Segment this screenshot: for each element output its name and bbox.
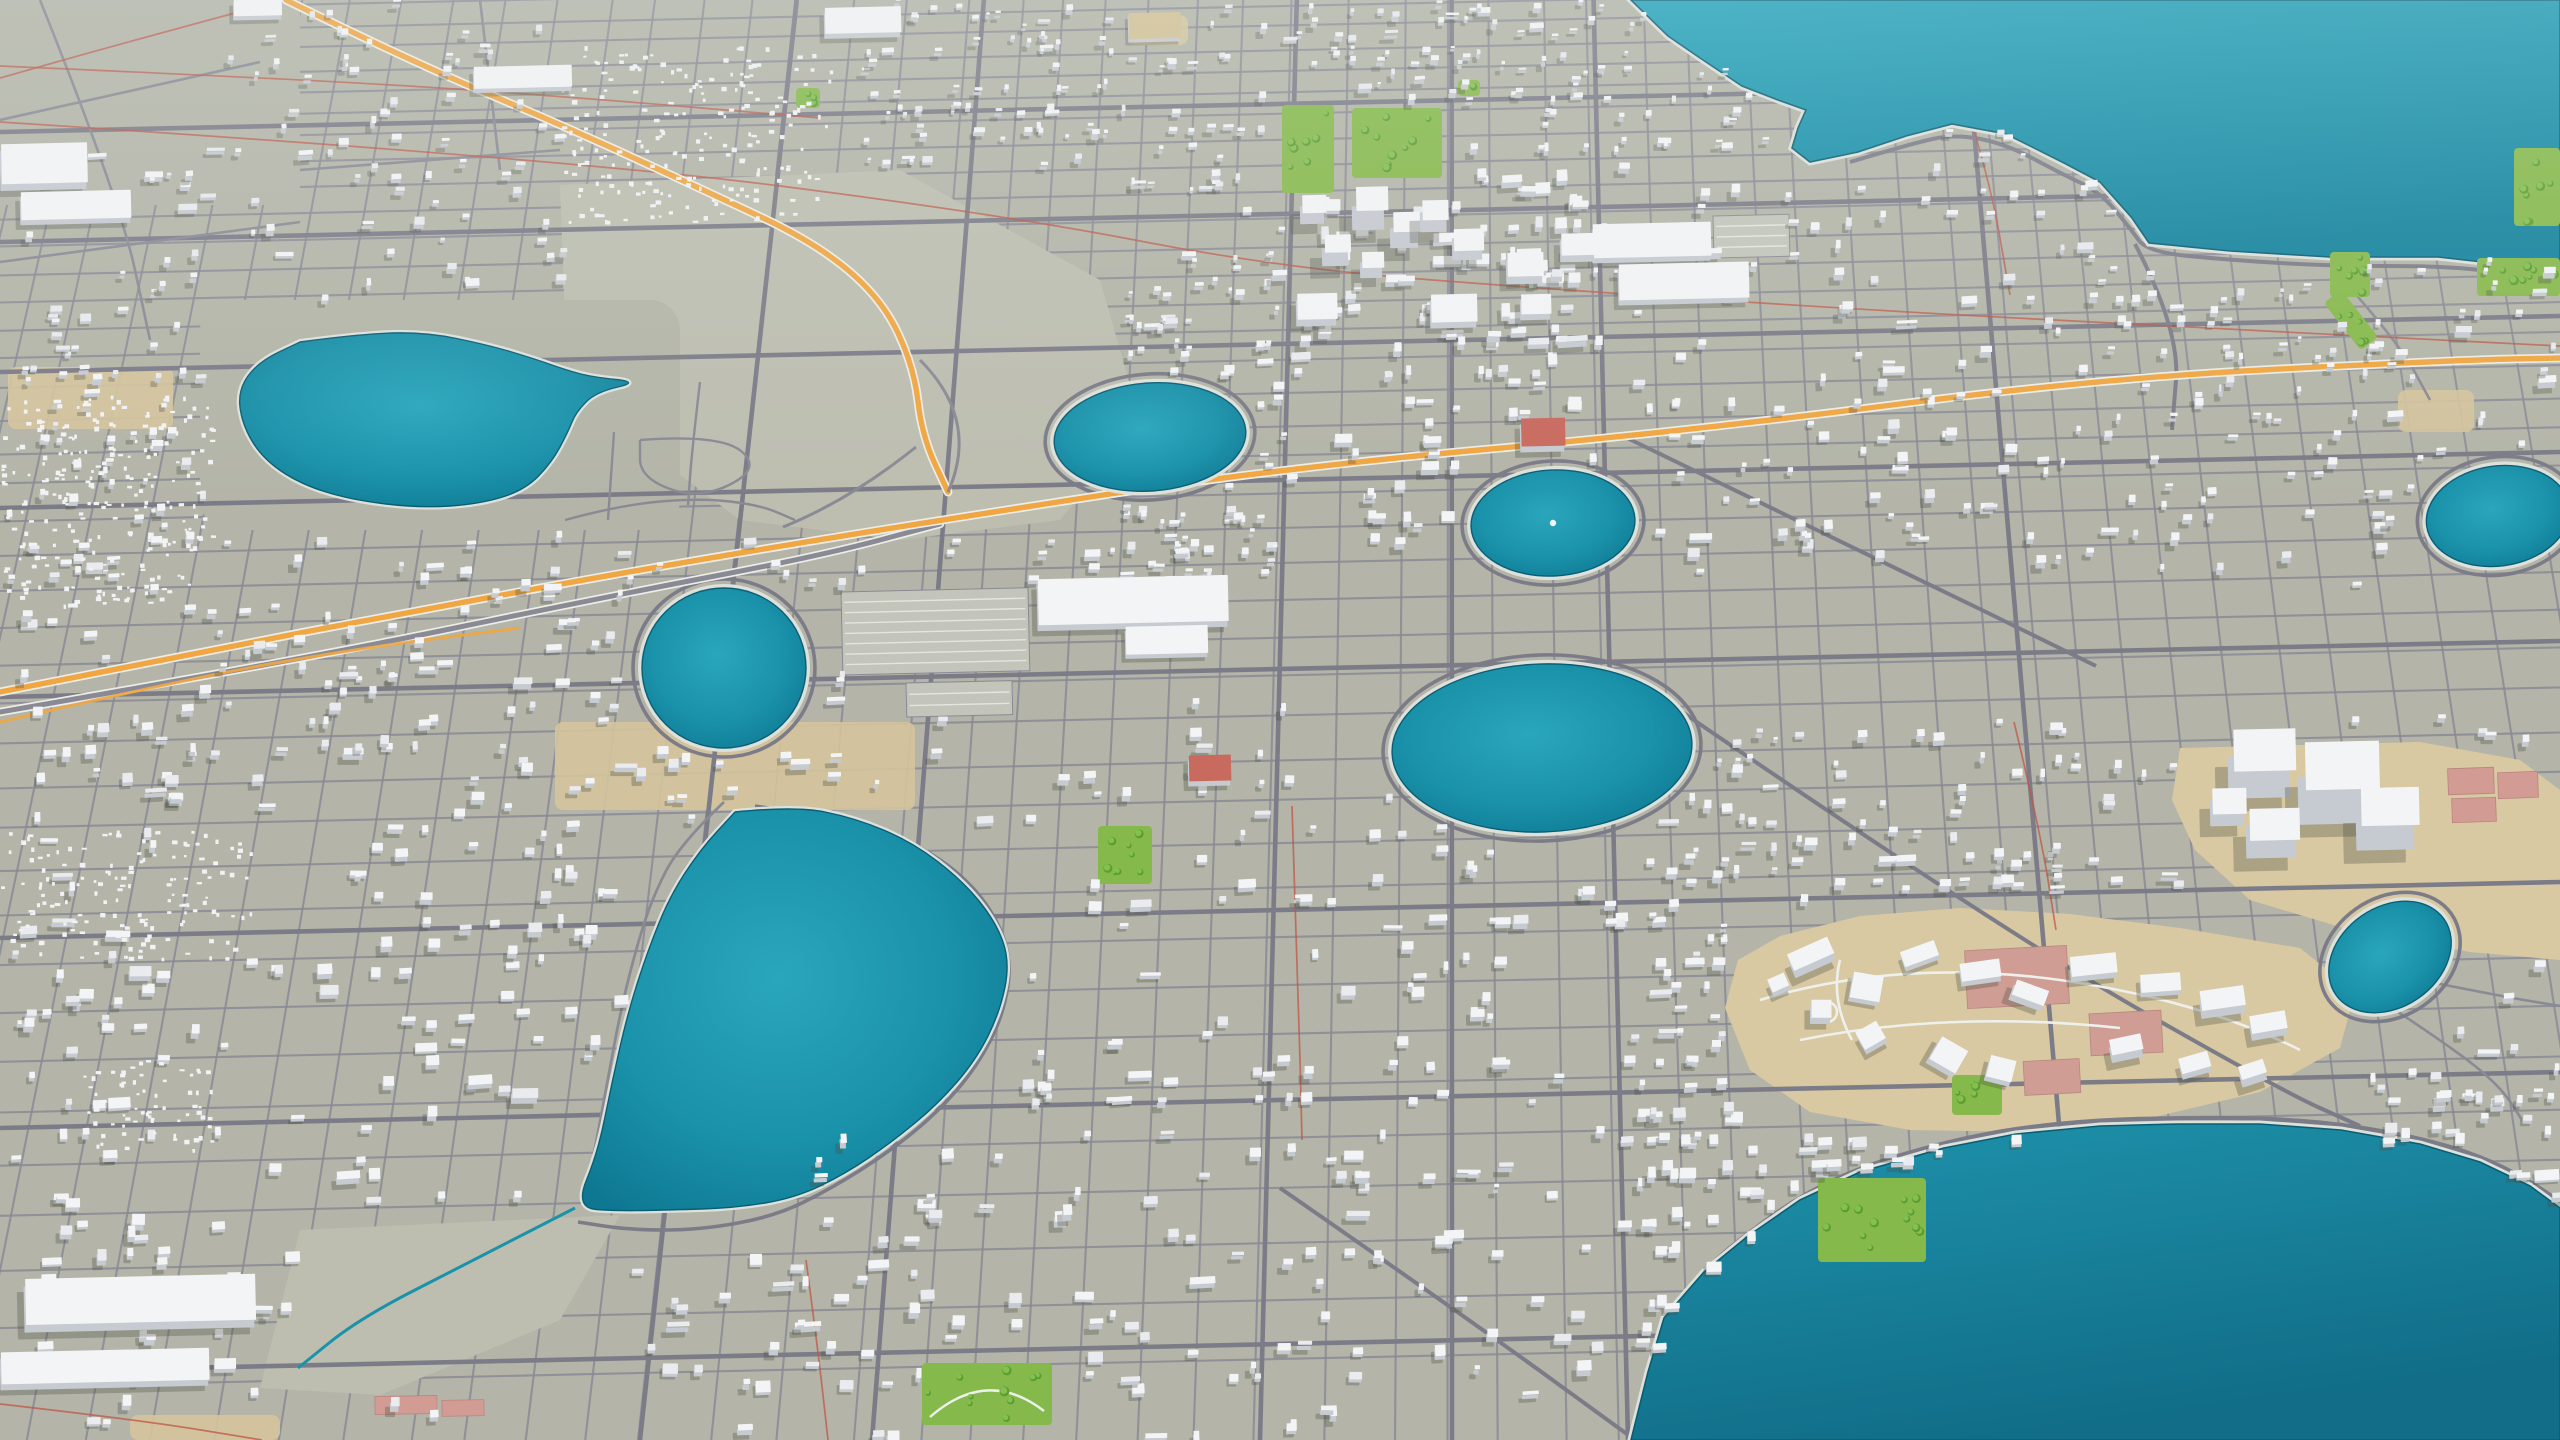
city-3d-map-render [0,0,2560,1440]
city-map-canvas [0,0,2560,1440]
atmosphere-haze [0,0,2560,1440]
